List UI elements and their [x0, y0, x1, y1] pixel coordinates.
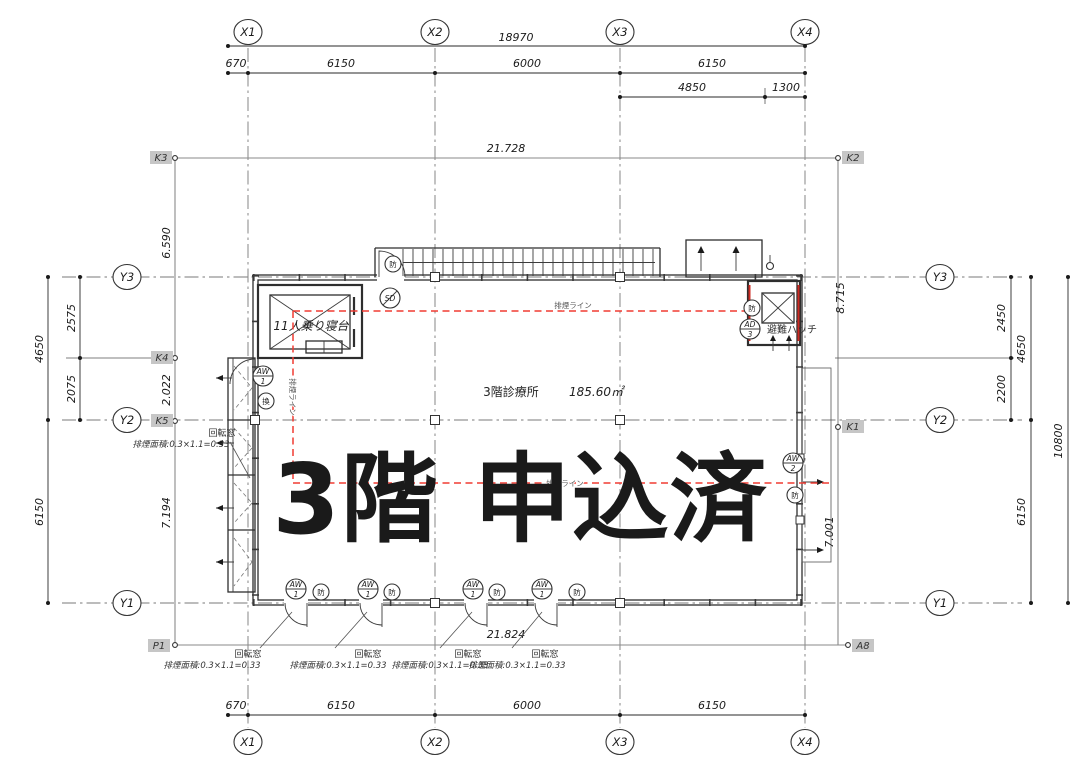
aw-number: 2	[791, 464, 796, 473]
dim-top-6000: 6000	[513, 57, 541, 70]
dim-k-8715: 8.715	[834, 282, 847, 314]
grid-y1-left: Y1	[120, 596, 134, 610]
status-overlay-text: 3階 申込済	[272, 443, 767, 556]
grid-x2-bottom: X2	[426, 735, 442, 749]
aw-number: 1	[540, 590, 545, 599]
window-note-4: 回転窓 排煙面積:0.3×1.1=0.33	[468, 648, 565, 671]
dim-top-1300: 1300	[772, 81, 800, 94]
floor-plan-drawing: X1 X2 X3 X4 18970 670 6150 6000 6150 485…	[0, 0, 1085, 780]
window-name: 回転窓	[234, 648, 261, 660]
bottom-dimensions: 21.824 670 6150 6000 6150 X1 X2 X3 X4	[226, 628, 820, 755]
dim-right-10800: 10800	[1052, 424, 1065, 459]
window-note-2: 回転窓 排煙面積:0.3×1.1=0.33	[289, 648, 386, 671]
fire-symbol-hatch: 防	[744, 300, 760, 316]
dim-top-6150b: 6150	[698, 57, 726, 70]
window-note-left: 回転窓 排煙面積:0.3×1.1=0.33	[132, 427, 235, 450]
grid-y2-right: Y2	[933, 413, 947, 427]
fire-label: 防	[493, 587, 501, 597]
grid-y2-left: Y2	[120, 413, 134, 427]
aw-number: 1	[471, 590, 476, 599]
wall-fixture-icon	[767, 255, 774, 270]
room-name: 3階診療所	[483, 384, 539, 399]
marker-k2: K2	[847, 153, 860, 164]
k-markers: K3 K2 K4 K5 K1 P1 A8	[148, 151, 874, 652]
dim-right-4650: 4650	[1015, 335, 1028, 363]
dim-left-4650: 4650	[33, 335, 46, 363]
aw1-symbol-left: AW 1	[253, 366, 273, 386]
window-formula: 排煙面積:0.3×1.1=0.33	[132, 439, 229, 450]
vent-symbol-left: 換	[258, 393, 274, 409]
dim-k-7194: 7.194	[160, 497, 173, 529]
dim-k-7001: 7.001	[823, 516, 836, 548]
window-name: 回転窓	[208, 427, 235, 439]
sd-symbol: SD	[380, 288, 400, 308]
aw-number: 1	[261, 377, 266, 386]
dim-top-total: 18970	[499, 31, 534, 44]
marker-a8: A8	[855, 641, 869, 652]
dim-k-top: 21.728	[487, 142, 526, 155]
aw-number: 1	[294, 590, 299, 599]
dim-bot-6150a: 6150	[327, 699, 355, 712]
elevator-shaft: 11人乗り寝台	[258, 285, 362, 358]
fire-symbol-right: 防	[787, 487, 803, 503]
aw1-symbols-bottom: AW 1 防 AW 1 防 AW 1 防 AW 1 防	[286, 579, 585, 600]
aw-label: AW	[535, 580, 549, 589]
grid-x3-top: X3	[611, 25, 627, 39]
grid-x4-bottom: X4	[796, 735, 812, 749]
dim-left-2075: 2075	[65, 375, 78, 403]
grid-x4-top: X4	[796, 25, 812, 39]
top-dimensions: X1 X2 X3 X4 18970 670 6150 6000 6150 485…	[226, 20, 820, 156]
marker-k1: K1	[847, 422, 860, 433]
smoke-line-label-vertical: 排煙ライン	[288, 378, 298, 416]
sd-label: SD	[385, 294, 396, 303]
grid-x3-bottom: X3	[611, 735, 627, 749]
evacuation-hatch: 避難ハッチ	[748, 281, 817, 351]
fire-label: 防	[748, 303, 756, 313]
grid-y3-left: Y3	[120, 270, 134, 284]
marker-k5: K5	[156, 416, 169, 427]
dim-right-6150: 6150	[1015, 498, 1028, 526]
fire-symbol-stair: 防	[385, 256, 401, 272]
smoke-line-label-top: 排煙ライン	[554, 300, 592, 310]
window-note-1: 回転窓 排煙面積:0.3×1.1=0.33	[163, 648, 261, 671]
dim-bot-6000: 6000	[513, 699, 541, 712]
ad3-symbol: AD 3	[740, 319, 760, 339]
hatch-label: 避難ハッチ	[767, 323, 817, 336]
floor-plan-page: X1 X2 X3 X4 18970 670 6150 6000 6150 485…	[0, 0, 1085, 780]
aw-label: AW	[289, 580, 303, 589]
fire-label: 防	[573, 587, 581, 597]
right-dimensions: Y3 Y2 Y1 2450 2200 4650 6150 10800 8.715…	[823, 265, 1070, 616]
grid-y3-right: Y3	[933, 270, 947, 284]
fire-label: 防	[791, 490, 799, 500]
window-vent-arrows-left	[216, 375, 234, 565]
bottom-doors	[285, 603, 557, 627]
window-formula: 排煙面積:0.3×1.1=0.33	[468, 660, 565, 671]
grid-x2-top: X2	[426, 25, 442, 39]
dim-top-6150a: 6150	[327, 57, 355, 70]
dim-left-2575: 2575	[65, 304, 78, 332]
marker-k3: K3	[155, 153, 168, 164]
aw-number: 1	[366, 590, 371, 599]
fire-label: 防	[317, 587, 325, 597]
window-formula: 排煙面積:0.3×1.1=0.33	[163, 660, 260, 671]
elevator-label: 11人乗り寝台	[273, 319, 349, 333]
building: 11人乗り寝台 避難ハッチ	[216, 240, 831, 627]
aw2-symbol-right: AW 2	[783, 453, 803, 473]
dim-k-2022: 2.022	[160, 374, 173, 406]
grid-y1-right: Y1	[933, 596, 947, 610]
dim-top-4850: 4850	[678, 81, 706, 94]
aw-label: AW	[361, 580, 375, 589]
grid-x1-bottom: X1	[239, 735, 255, 749]
marker-k4: K4	[156, 353, 169, 364]
window-name: 回転窓	[531, 648, 558, 660]
fire-label: 防	[389, 259, 397, 269]
dim-right-2200: 2200	[995, 375, 1008, 403]
aw-label: AW	[256, 367, 270, 376]
window-name: 回転窓	[454, 648, 481, 660]
grid-lines	[62, 48, 1022, 728]
dim-top-670: 670	[226, 57, 247, 70]
marker-p1: P1	[153, 641, 165, 652]
dim-k-6590: 6.590	[160, 227, 173, 259]
window-formula: 排煙面積:0.3×1.1=0.33	[289, 660, 386, 671]
grid-x1-top: X1	[239, 25, 255, 39]
stair-landing	[686, 240, 762, 277]
ad-number: 3	[748, 330, 753, 339]
dim-bot-6150b: 6150	[698, 699, 726, 712]
vent-label: 換	[262, 396, 270, 406]
left-window-bay	[216, 358, 255, 592]
aw-label: AW	[466, 580, 480, 589]
dim-bot-670: 670	[226, 699, 247, 712]
window-name: 回転窓	[354, 648, 381, 660]
fire-label: 防	[388, 587, 396, 597]
ad-label: AD	[744, 320, 756, 329]
dim-left-6150: 6150	[33, 498, 46, 526]
room-area: 185.60㎡	[569, 385, 626, 399]
dim-right-2450: 2450	[995, 304, 1008, 332]
aw-label: AW	[786, 454, 800, 463]
